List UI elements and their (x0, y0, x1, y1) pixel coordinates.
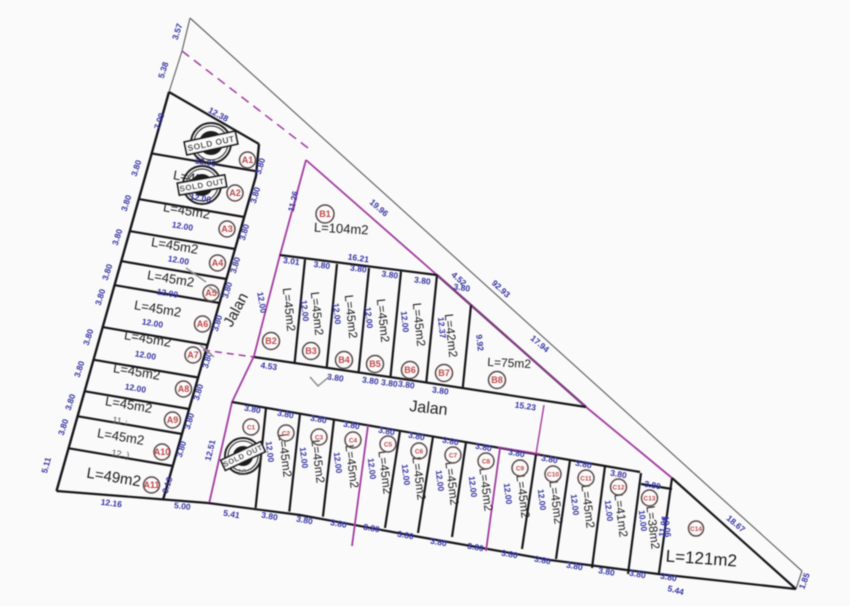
svg-text:C13: C13 (644, 495, 656, 502)
svg-text:C6: C6 (415, 448, 424, 455)
svg-text:C10: C10 (547, 471, 559, 478)
svg-text:B5: B5 (369, 359, 381, 369)
svg-text:A9: A9 (167, 415, 179, 425)
svg-text:C3: C3 (315, 434, 324, 441)
svg-text:A3: A3 (221, 224, 233, 234)
svg-text:C12: C12 (613, 484, 625, 491)
svg-text:B2: B2 (265, 336, 277, 346)
svg-text:A7: A7 (187, 350, 199, 360)
svg-text:A10: A10 (154, 447, 171, 457)
svg-text:9.92: 9.92 (474, 334, 486, 352)
svg-text:C2: C2 (282, 430, 291, 437)
svg-text:5.00: 5.00 (174, 500, 192, 512)
svg-text:A5: A5 (205, 288, 217, 298)
svg-text:L=75m2: L=75m2 (487, 355, 532, 371)
svg-text:C11: C11 (580, 475, 592, 482)
svg-text:C7: C7 (449, 452, 458, 459)
svg-text:B1: B1 (319, 209, 331, 219)
svg-text:L=104m2: L=104m2 (314, 220, 369, 238)
svg-text:A1: A1 (242, 155, 254, 165)
svg-text:A8: A8 (178, 384, 190, 394)
svg-text:A2: A2 (229, 188, 241, 198)
svg-text:C8: C8 (482, 458, 491, 465)
svg-text:C1: C1 (247, 424, 256, 431)
svg-text:10: 10 (238, 468, 247, 477)
svg-text:C9: C9 (516, 465, 525, 472)
svg-text:B7: B7 (438, 368, 450, 378)
svg-text:B3: B3 (305, 346, 317, 356)
svg-text:A6: A6 (197, 319, 209, 329)
svg-text:B8: B8 (491, 375, 503, 385)
svg-text:A4: A4 (212, 258, 224, 268)
svg-text:A11: A11 (143, 480, 159, 490)
svg-text:C14: C14 (690, 526, 702, 533)
svg-text:C4: C4 (349, 437, 358, 444)
svg-text:B6: B6 (404, 365, 416, 375)
svg-text:B4: B4 (338, 355, 350, 365)
svg-text:C5: C5 (384, 441, 393, 448)
